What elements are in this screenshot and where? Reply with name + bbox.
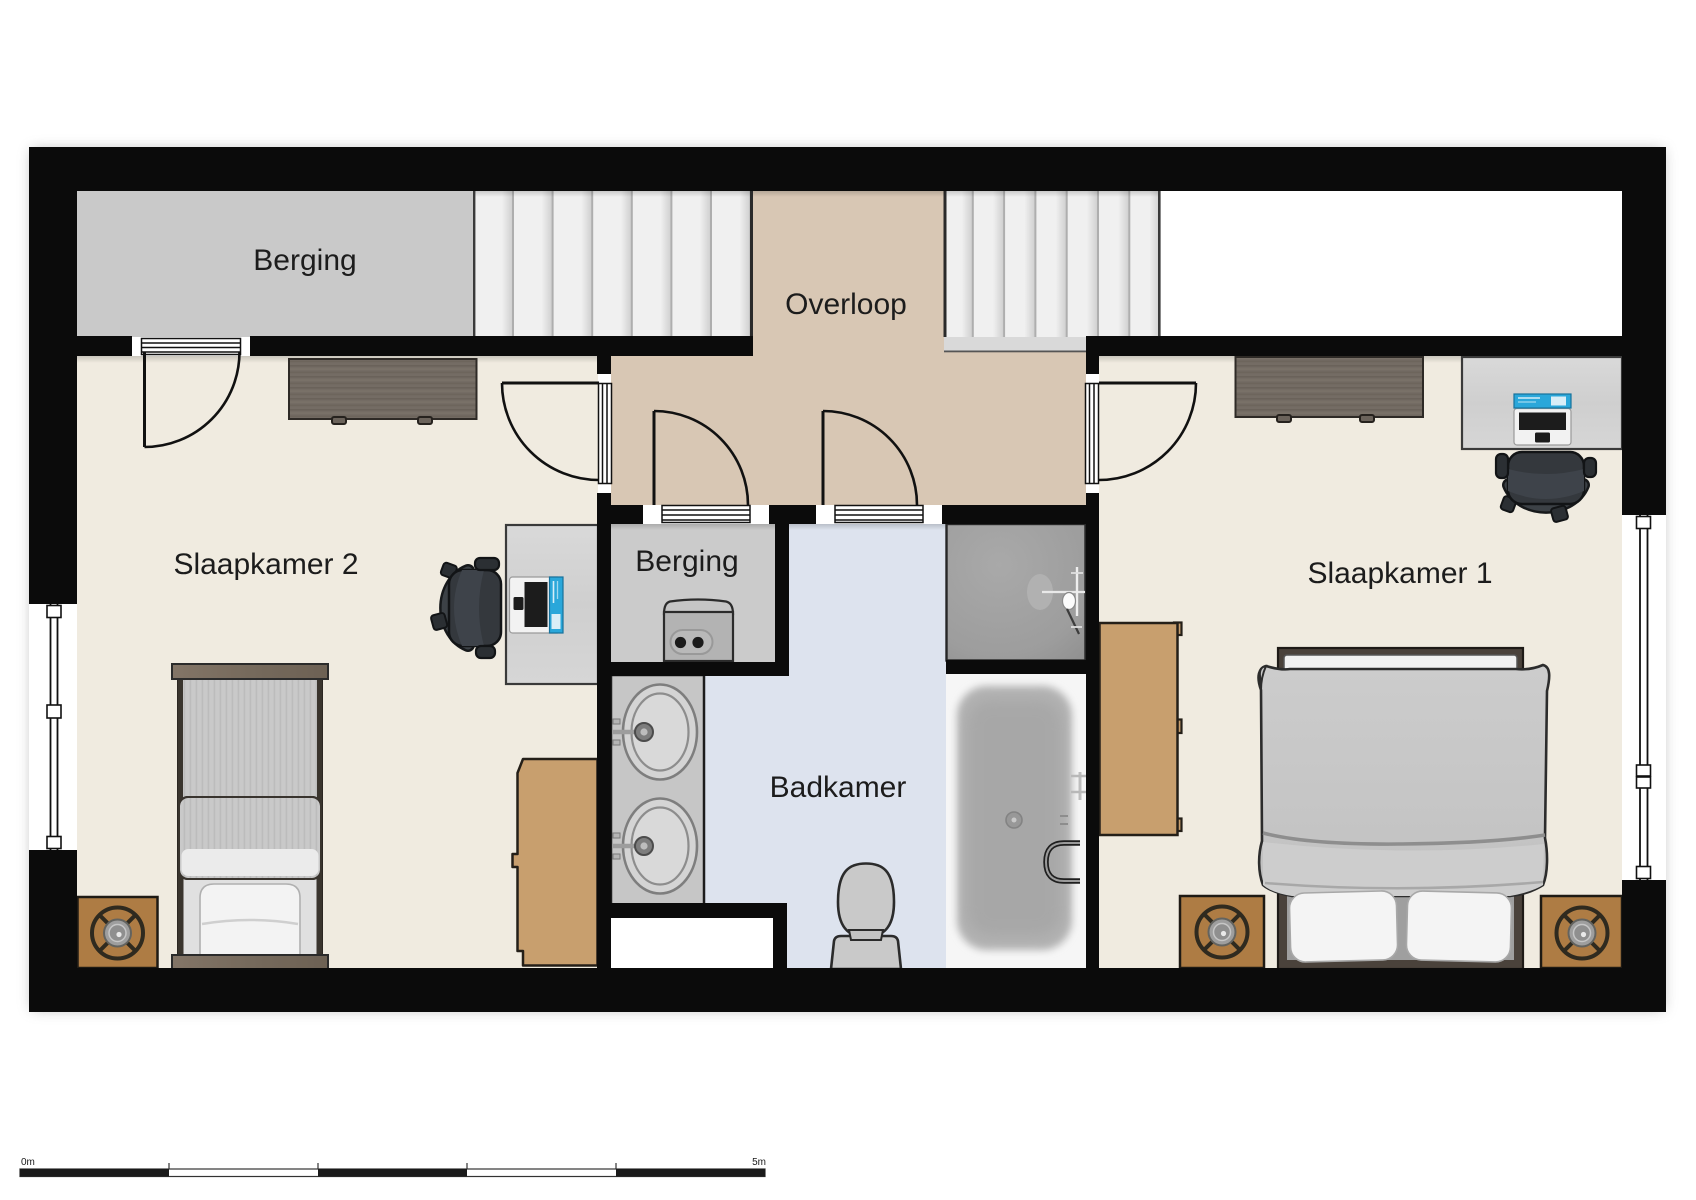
svg-text:Overloop: Overloop xyxy=(785,288,907,321)
svg-text:5m: 5m xyxy=(752,1157,766,1168)
svg-text:Slaapkamer 2: Slaapkamer 2 xyxy=(173,548,358,581)
svg-text:Slaapkamer 1: Slaapkamer 1 xyxy=(1307,557,1492,590)
svg-text:Berging: Berging xyxy=(635,545,738,578)
svg-text:Badkamer: Badkamer xyxy=(770,771,907,804)
svg-text:0m: 0m xyxy=(21,1157,35,1168)
svg-text:Berging: Berging xyxy=(253,244,356,277)
